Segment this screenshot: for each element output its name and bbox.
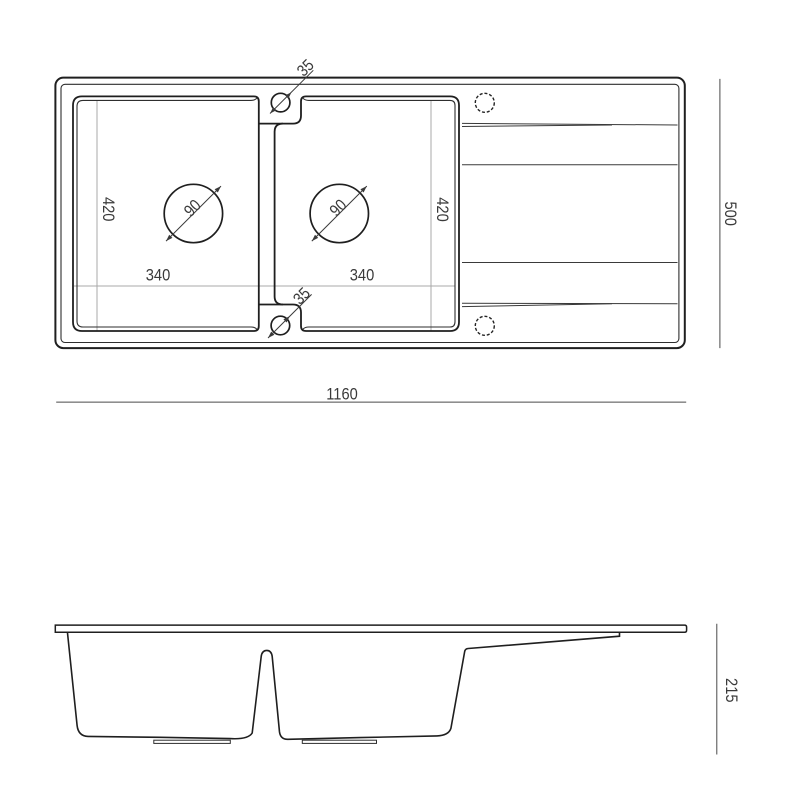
svg-text:500: 500 [721,201,739,226]
svg-text:340: 340 [146,267,171,285]
svg-text:215: 215 [722,678,740,703]
svg-text:420: 420 [99,197,117,222]
svg-text:340: 340 [350,267,375,285]
svg-text:1160: 1160 [326,386,358,404]
svg-text:420: 420 [433,197,451,222]
